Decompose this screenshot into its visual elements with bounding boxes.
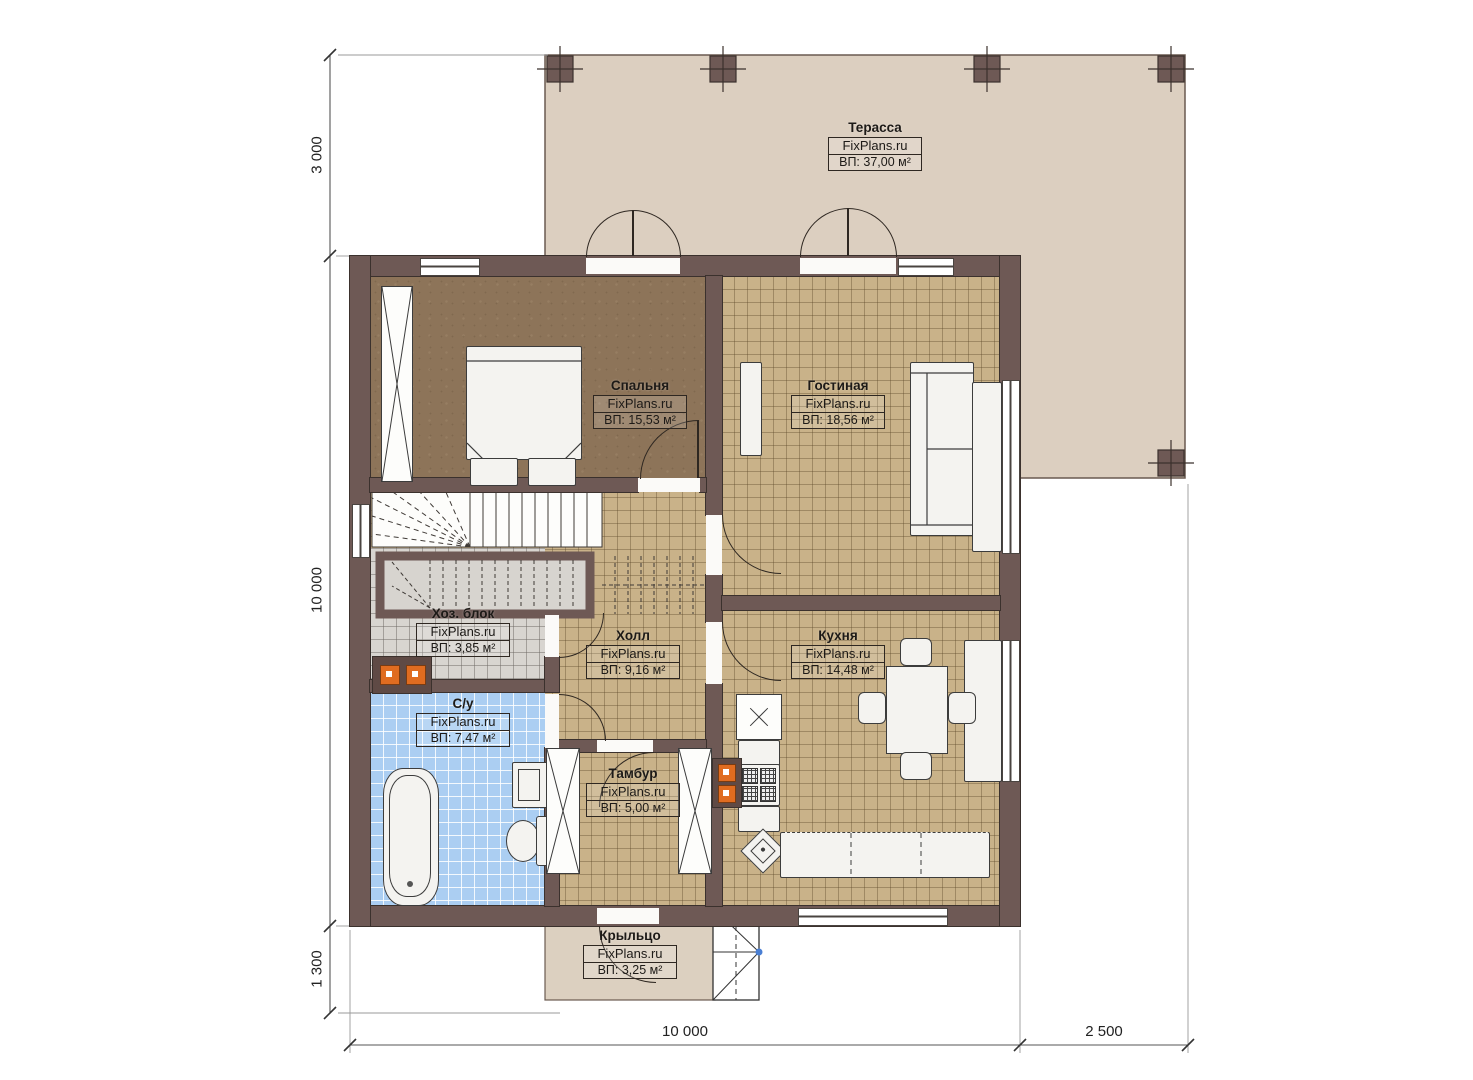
stove-burner <box>742 786 758 802</box>
bedroom-door-gap <box>638 478 700 492</box>
stove-burner <box>760 768 776 784</box>
kitchen-south-window <box>798 908 948 926</box>
watermark: FixPlans.ru <box>587 646 679 663</box>
watermark: FixPlans.ru <box>829 138 921 155</box>
room-name: Кухня <box>791 628 885 643</box>
terrace-door-right-leafline <box>847 208 849 256</box>
bathtub-drain <box>407 881 413 887</box>
bedroom-wardrobe <box>381 286 413 482</box>
entry-door-opening <box>597 908 659 924</box>
room-label-box: FixPlans.ru ВП: 37,00 м² <box>828 137 922 171</box>
dining-chair-left <box>858 692 886 724</box>
meter-indicator <box>718 785 736 803</box>
dining-table <box>886 666 948 754</box>
dim-house-height: 10 000 <box>309 567 326 613</box>
wall-bathroom-east-upper <box>545 657 559 692</box>
kitchen-east-window <box>1002 640 1020 782</box>
vestibule-door-gap <box>597 740 653 752</box>
boiler-indicator-core <box>386 671 392 677</box>
room-name: Тамбур <box>586 766 680 781</box>
kitchen-fridge <box>738 740 780 766</box>
room-label-box: FixPlans.ru ВП: 18,56 м² <box>791 395 885 429</box>
bed <box>466 346 582 460</box>
terrace-door-opening-left <box>586 258 680 274</box>
room-area: ВП: 7,47 м² <box>417 731 509 746</box>
room-name: Холл <box>586 628 680 643</box>
dining-chair-top <box>900 638 932 666</box>
room-name: Хоз. блок <box>416 606 510 621</box>
room-name: Гостиная <box>791 378 885 393</box>
dining-chair-bottom <box>900 752 932 780</box>
room-label-box: FixPlans.ru ВП: 7,47 м² <box>416 713 510 747</box>
wall-bedroom-south-stub <box>700 478 706 492</box>
bathtub <box>383 768 439 906</box>
toilet-bowl <box>506 820 540 862</box>
meter-indicator-core <box>723 769 729 775</box>
room-label-box: FixPlans.ru ВП: 9,16 м² <box>586 645 680 679</box>
staircase <box>370 490 723 620</box>
room-label-box: FixPlans.ru ВП: 3,25 м² <box>583 945 677 979</box>
room-label-vestibule: Тамбур FixPlans.ru ВП: 5,00 м² <box>586 766 680 817</box>
stair-window <box>352 504 370 558</box>
bedroom-window <box>420 258 480 276</box>
dim-terrace-width: 2 500 <box>1085 1023 1123 1040</box>
dining-chair-right <box>948 692 976 724</box>
living-window-sill <box>972 382 1002 552</box>
sofa <box>910 362 974 536</box>
room-label-box: FixPlans.ru ВП: 14,48 м² <box>791 645 885 679</box>
watermark: FixPlans.ru <box>584 946 676 963</box>
kitchen-sink-cabinet <box>736 694 782 740</box>
tv-stand <box>740 362 762 456</box>
meter-indicator <box>718 764 736 782</box>
room-label-kitchen: Кухня FixPlans.ru ВП: 14,48 м² <box>791 628 885 679</box>
watermark: FixPlans.ru <box>417 714 509 731</box>
room-area: ВП: 37,00 м² <box>829 155 921 170</box>
vestibule-closet-left <box>546 748 580 874</box>
bathroom-sink <box>512 762 548 808</box>
room-area: ВП: 3,85 м² <box>417 641 509 656</box>
bathroom-sink-basin <box>518 769 540 801</box>
room-area: ВП: 9,16 м² <box>587 663 679 678</box>
room-label-box: FixPlans.ru ВП: 15,53 м² <box>593 395 687 429</box>
bathtub-inner <box>389 775 431 897</box>
room-label-hall: Холл FixPlans.ru ВП: 9,16 м² <box>586 628 680 679</box>
nightstand-left <box>470 458 518 486</box>
bathroom-door-gap <box>545 694 559 748</box>
living-north-window <box>898 258 954 276</box>
kitchen-meter-panel <box>712 758 742 808</box>
room-area: ВП: 15,53 м² <box>594 413 686 428</box>
room-label-terrace: Терасса FixPlans.ru ВП: 37,00 м² <box>828 120 922 171</box>
room-area: ВП: 14,48 м² <box>792 663 884 678</box>
living-door-gap <box>706 515 722 575</box>
floor-plan: Терасса FixPlans.ru ВП: 37,00 м² Спальня… <box>0 0 1473 1080</box>
dim-terrace-depth: 3 000 <box>309 136 326 174</box>
room-label-utility: Хоз. блок FixPlans.ru ВП: 3,85 м² <box>416 606 510 657</box>
room-area: ВП: 3,25 м² <box>584 963 676 978</box>
meter-indicator-core <box>723 790 729 796</box>
boiler-indicator <box>380 665 400 685</box>
room-label-bathroom: С/у FixPlans.ru ВП: 7,47 м² <box>416 696 510 747</box>
room-name: С/у <box>416 696 510 711</box>
room-area: ВП: 18,56 м² <box>792 413 884 428</box>
terrace-door-left-leafline <box>632 210 634 256</box>
watermark: FixPlans.ru <box>792 396 884 413</box>
watermark: FixPlans.ru <box>587 784 679 801</box>
dim-porch-depth: 1 300 <box>309 950 326 988</box>
terrace-door-opening-right <box>800 258 896 274</box>
room-label-porch: Крыльцо FixPlans.ru ВП: 3,25 м² <box>583 928 677 979</box>
kitchen-door-gap <box>706 622 722 684</box>
wall-living-kitchen <box>722 596 1000 610</box>
wall-outer-right <box>1000 256 1020 926</box>
room-label-box: FixPlans.ru ВП: 5,00 м² <box>586 783 680 817</box>
stove-burner <box>760 786 776 802</box>
room-label-living: Гостиная FixPlans.ru ВП: 18,56 м² <box>791 378 885 429</box>
boiler-indicator <box>406 665 426 685</box>
dim-house-width: 10 000 <box>662 1023 708 1040</box>
nightstand-right <box>528 458 576 486</box>
room-name: Спальня <box>593 378 687 393</box>
wall-outer-left <box>350 256 370 926</box>
room-name: Крыльцо <box>583 928 677 943</box>
room-name: Терасса <box>828 120 922 135</box>
watermark: FixPlans.ru <box>594 396 686 413</box>
utility-door-gap <box>545 615 559 657</box>
room-label-box: FixPlans.ru ВП: 3,85 м² <box>416 623 510 657</box>
vestibule-closet-right <box>678 748 712 874</box>
room-area: ВП: 5,00 м² <box>587 801 679 816</box>
stove <box>738 764 780 806</box>
stove-burner <box>742 768 758 784</box>
kitchen-counter <box>780 832 990 878</box>
corner-sink-basin <box>740 828 785 873</box>
room-label-bedroom: Спальня FixPlans.ru ВП: 15,53 м² <box>593 378 687 429</box>
wall-center-mid <box>706 575 722 622</box>
watermark: FixPlans.ru <box>792 646 884 663</box>
bedroom-door-leaf <box>697 420 699 478</box>
living-east-window <box>1002 380 1020 554</box>
boiler-indicator-core <box>412 671 418 677</box>
utility-boiler <box>372 656 432 694</box>
wall-center-upper <box>706 276 722 515</box>
watermark: FixPlans.ru <box>417 624 509 641</box>
